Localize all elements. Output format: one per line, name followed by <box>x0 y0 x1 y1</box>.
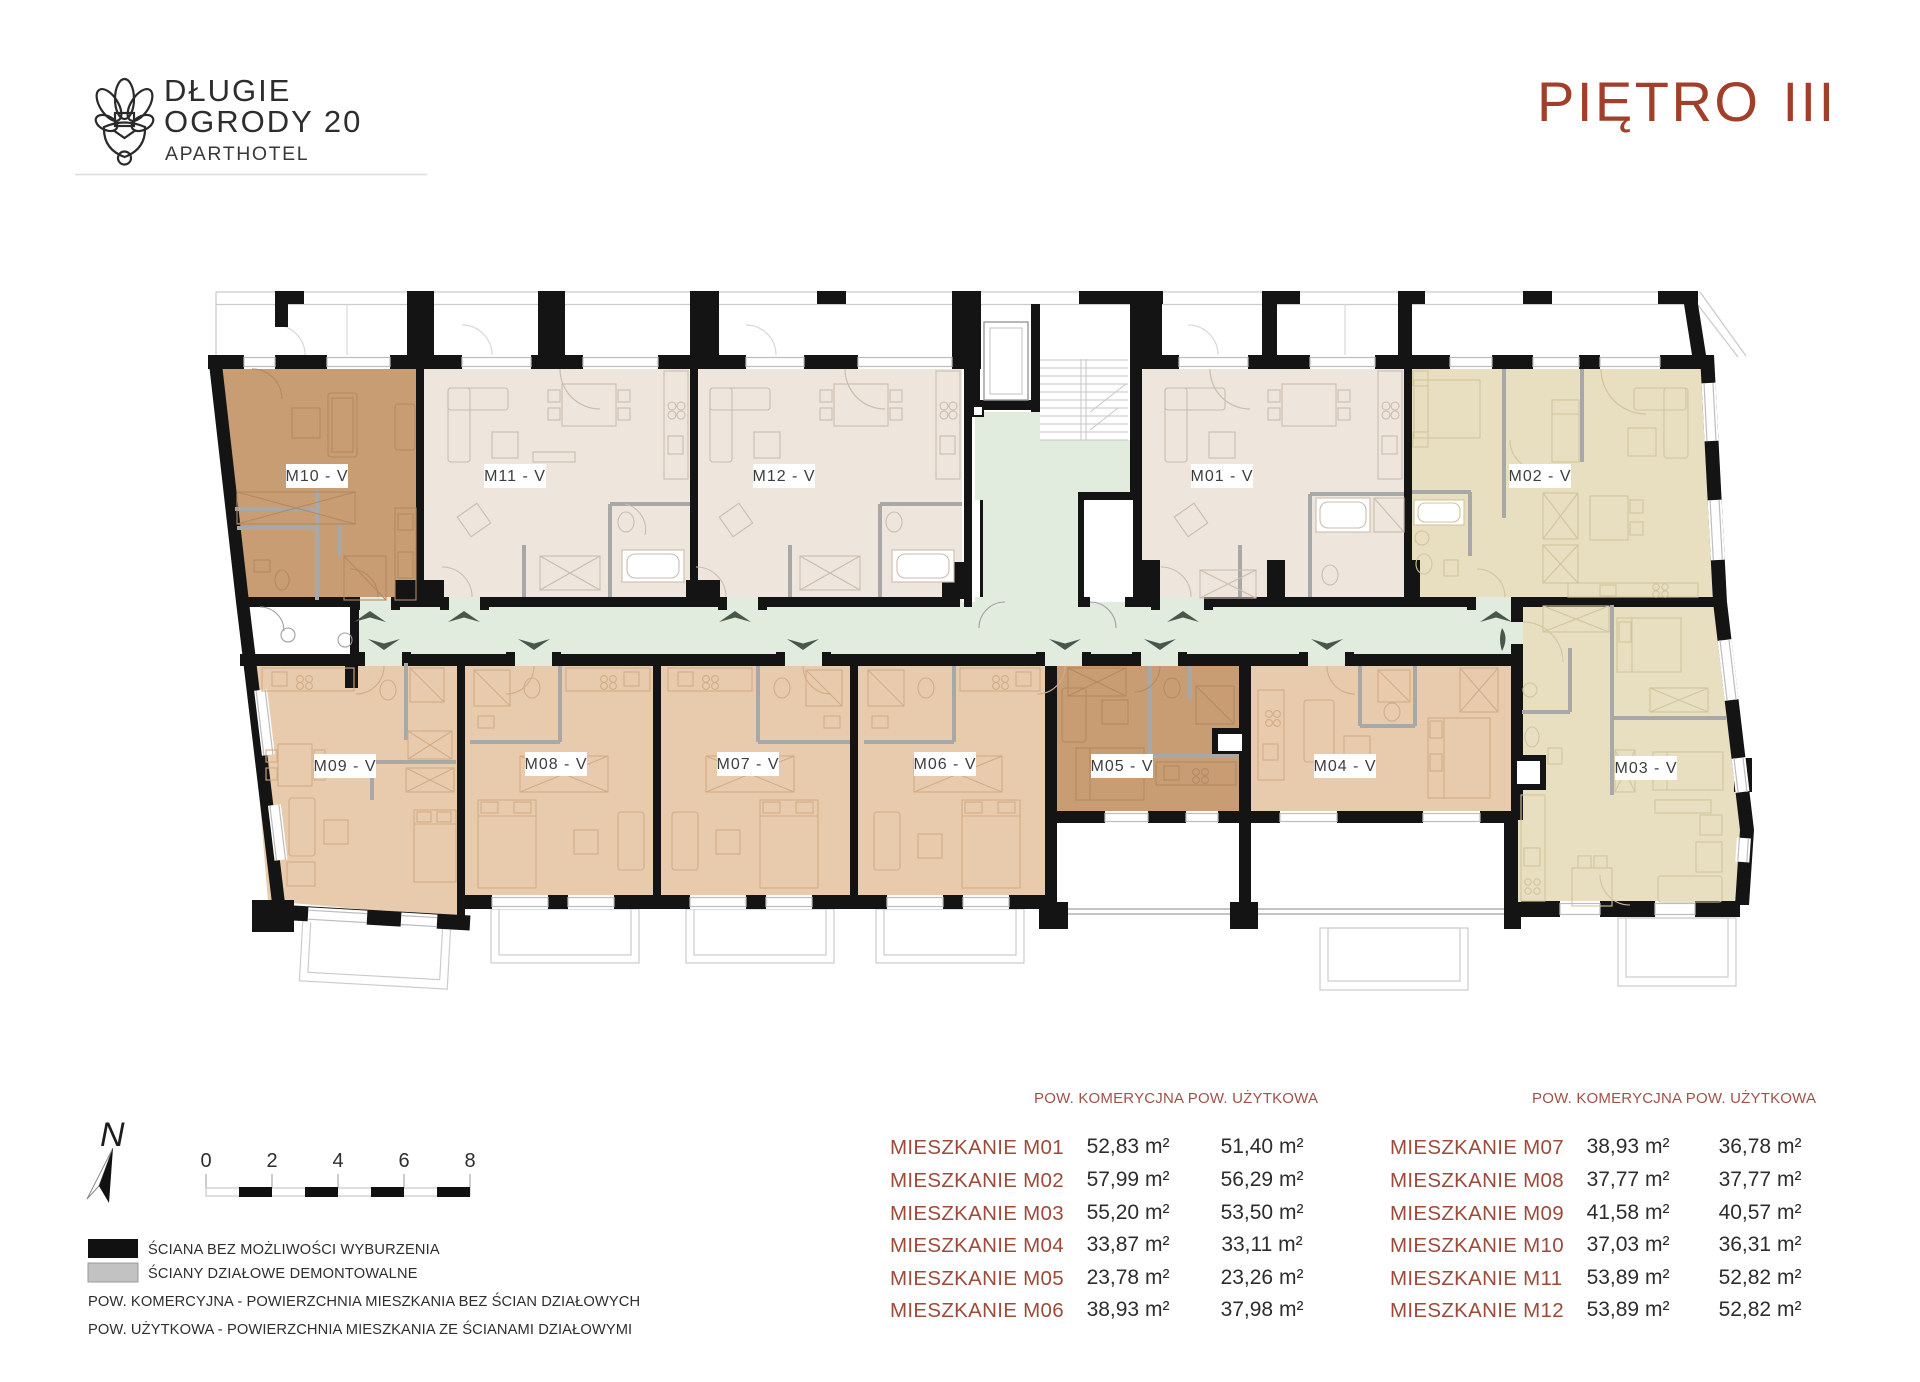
svg-text:41,58 m²: 41,58 m² <box>1587 1201 1670 1224</box>
svg-text:MIESZKANIE M09: MIESZKANIE M09 <box>1390 1202 1564 1225</box>
svg-text:36,78 m²: 36,78 m² <box>1719 1135 1802 1158</box>
svg-text:36,31 m²: 36,31 m² <box>1719 1233 1802 1256</box>
svg-text:PIĘTROIII: PIĘTROIII <box>1537 70 1837 133</box>
svg-text:M06 - V: M06 - V <box>913 756 976 773</box>
svg-text:23,26 m²: 23,26 m² <box>1221 1266 1304 1289</box>
svg-text:M04 - V: M04 - V <box>1313 758 1376 775</box>
svg-text:40,57 m²: 40,57 m² <box>1719 1201 1802 1224</box>
svg-text:2: 2 <box>266 1150 277 1172</box>
svg-text:37,03 m²: 37,03 m² <box>1587 1233 1670 1256</box>
svg-text:POW. KOMERYCJNA POW. UŻYTKOWA: POW. KOMERYCJNA POW. UŻYTKOWA <box>1532 1089 1816 1107</box>
svg-text:ŚCIANA BEZ MOŻLIWOŚCI WYBURZEN: ŚCIANA BEZ MOŻLIWOŚCI WYBURZENIA <box>148 1240 440 1258</box>
svg-text:53,50 m²: 53,50 m² <box>1221 1201 1304 1224</box>
svg-text:M01 - V: M01 - V <box>1190 468 1253 485</box>
svg-text:MIESZKANIE M07: MIESZKANIE M07 <box>1390 1136 1564 1159</box>
svg-text:37,77 m²: 37,77 m² <box>1719 1168 1802 1191</box>
svg-text:M12 - V: M12 - V <box>752 468 815 485</box>
svg-text:MIESZKANIE M06: MIESZKANIE M06 <box>890 1299 1064 1322</box>
svg-text:37,98 m²: 37,98 m² <box>1221 1298 1304 1321</box>
svg-text:55,20 m²: 55,20 m² <box>1087 1201 1170 1224</box>
svg-text:38,93 m²: 38,93 m² <box>1087 1298 1170 1321</box>
svg-text:MIESZKANIE M08: MIESZKANIE M08 <box>1390 1169 1564 1192</box>
svg-text:M07 - V: M07 - V <box>716 756 779 773</box>
svg-text:33,11 m²: 33,11 m² <box>1221 1233 1302 1256</box>
svg-text:52,83 m²: 52,83 m² <box>1087 1135 1170 1158</box>
svg-text:POW. KOMERYCJNA POW. UŻYTKOWA: POW. KOMERYCJNA POW. UŻYTKOWA <box>1034 1089 1318 1107</box>
svg-text:POW. UŻYTKOWA - POWIERZCHNIA: POW. UŻYTKOWA - POWIERZCHNIA MIESZKANIA … <box>88 1320 632 1338</box>
svg-text:M09 - V: M09 - V <box>313 758 376 775</box>
svg-text:52,82 m²: 52,82 m² <box>1719 1266 1802 1289</box>
svg-text:M03 - V: M03 - V <box>1614 760 1677 777</box>
svg-text:37,77 m²: 37,77 m² <box>1587 1168 1670 1191</box>
svg-text:53,89 m²: 53,89 m² <box>1587 1266 1670 1289</box>
svg-text:4: 4 <box>332 1150 343 1172</box>
svg-text:MIESZKANIE M11: MIESZKANIE M11 <box>1390 1267 1562 1290</box>
svg-text:ŚCIANY DZIAŁOWE DEMONTOWALNE: ŚCIANY DZIAŁOWE DEMONTOWALNE <box>148 1264 418 1282</box>
svg-text:56,29 m²: 56,29 m² <box>1221 1168 1304 1191</box>
svg-text:53,89 m²: 53,89 m² <box>1587 1298 1670 1321</box>
svg-text:8: 8 <box>464 1150 475 1172</box>
svg-text:33,87 m²: 33,87 m² <box>1087 1233 1170 1256</box>
svg-text:23,78 m²: 23,78 m² <box>1087 1266 1170 1289</box>
svg-text:DŁUGIE: DŁUGIE <box>164 73 291 108</box>
svg-text:M05 - V: M05 - V <box>1090 758 1153 775</box>
svg-text:MIESZKANIE M05: MIESZKANIE M05 <box>890 1267 1064 1290</box>
svg-text:POW. KOMERCYJNA - POWIERZCHN: POW. KOMERCYJNA - POWIERZCHNIA MIESZKANI… <box>88 1292 640 1310</box>
svg-text:M10 - V: M10 - V <box>285 468 348 485</box>
svg-text:M08 - V: M08 - V <box>524 756 587 773</box>
svg-text:51,40 m²: 51,40 m² <box>1221 1135 1304 1158</box>
svg-text:M02 - V: M02 - V <box>1508 468 1571 485</box>
svg-text:M11 - V: M11 - V <box>484 468 546 485</box>
svg-text:APARTHOTEL: APARTHOTEL <box>165 143 309 165</box>
svg-text:OGRODY 20: OGRODY 20 <box>164 104 362 139</box>
svg-text:MIESZKANIE M10: MIESZKANIE M10 <box>1390 1234 1564 1257</box>
svg-text:MIESZKANIE M04: MIESZKANIE M04 <box>890 1234 1064 1257</box>
svg-text:52,82 m²: 52,82 m² <box>1719 1298 1802 1321</box>
svg-text:MIESZKANIE M02: MIESZKANIE M02 <box>890 1169 1064 1192</box>
svg-text:MIESZKANIE M01: MIESZKANIE M01 <box>890 1136 1064 1159</box>
svg-text:MIESZKANIE M03: MIESZKANIE M03 <box>890 1202 1064 1225</box>
svg-text:57,99 m²: 57,99 m² <box>1087 1168 1170 1191</box>
svg-text:38,93 m²: 38,93 m² <box>1587 1135 1670 1158</box>
svg-text:MIESZKANIE M12: MIESZKANIE M12 <box>1390 1299 1564 1322</box>
svg-text:6: 6 <box>398 1150 409 1172</box>
svg-text:0: 0 <box>200 1150 211 1172</box>
